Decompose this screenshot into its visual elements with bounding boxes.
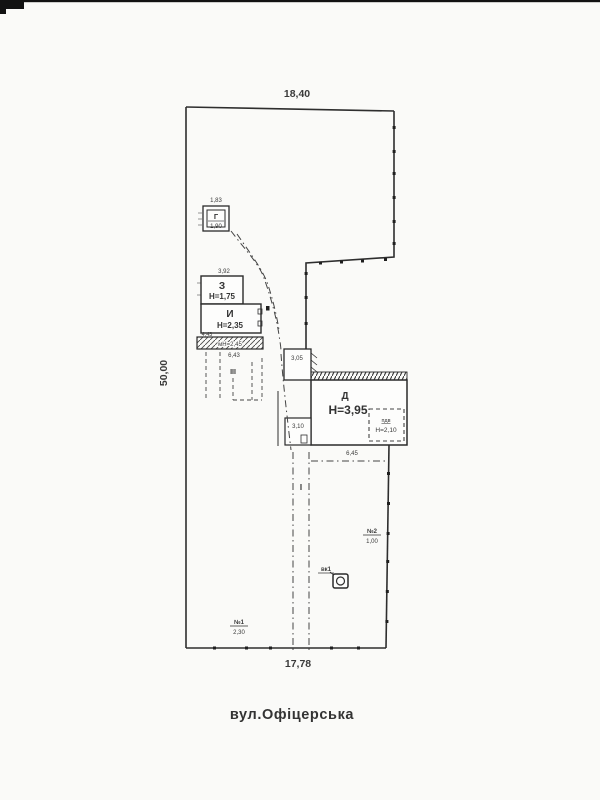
z-letter: З: [219, 281, 225, 292]
d-letter: Д: [341, 391, 348, 402]
i-letter: И: [226, 309, 233, 320]
gate1-value: 2,30: [233, 630, 245, 636]
zone-label: III: [230, 369, 236, 376]
veranda-dim-bottom: 6,43: [228, 353, 240, 359]
building-z: 3,92 З Н=1,75: [197, 269, 243, 304]
gate1-marker: №1 2,30: [230, 619, 248, 636]
shed-g: 1,83 Г 1,90: [198, 198, 229, 231]
gate2-value: 1,00: [366, 539, 378, 545]
veranda-label: мН=2,45: [218, 342, 242, 348]
path-label: I: [300, 483, 302, 492]
d-hatch-band: [311, 372, 407, 380]
shed-dim-top: 1,83: [210, 198, 222, 204]
scan-artifacts: [0, 0, 600, 14]
dim-left: 50,00: [158, 360, 170, 386]
building-i: И Н=2,35 4,43: [201, 304, 262, 338]
z-dim-top: 3,92: [218, 269, 230, 275]
d-dim-annex: 3,10: [292, 424, 304, 430]
street-name: вул.Офіцерська: [230, 707, 355, 723]
d-basement-label: пдв: [381, 418, 390, 424]
d-height: Н=3,95: [328, 403, 367, 417]
shed-letter: Г: [214, 212, 219, 221]
d-basement-height: Н=2,10: [375, 427, 397, 434]
d-dim-bottom: 6,45: [346, 451, 358, 457]
building-d: 3,05 Д Н=3,95 пдв Н=2,10 3,10 6,45: [278, 349, 407, 457]
veranda: мН=2,45 6,43: [197, 337, 263, 359]
d-extension: [284, 349, 311, 380]
well-marker: вк1: [318, 567, 348, 588]
gate2-marker: №2 1,00: [363, 528, 381, 545]
gate1-label: №1: [234, 619, 245, 626]
dim-top: 18,40: [284, 88, 310, 100]
z-height: Н=1,75: [209, 292, 236, 301]
shed-height: 1,90: [210, 224, 222, 230]
gate2-label: №2: [367, 528, 378, 535]
dim-bottom: 17,78: [285, 658, 311, 670]
i-height: Н=2,35: [217, 321, 244, 330]
site-plan: 18,40 50,00 17,78 1,83 Г 1,90 3,92 З Н=1…: [0, 0, 600, 800]
d-dim-ext: 3,05: [291, 356, 303, 362]
